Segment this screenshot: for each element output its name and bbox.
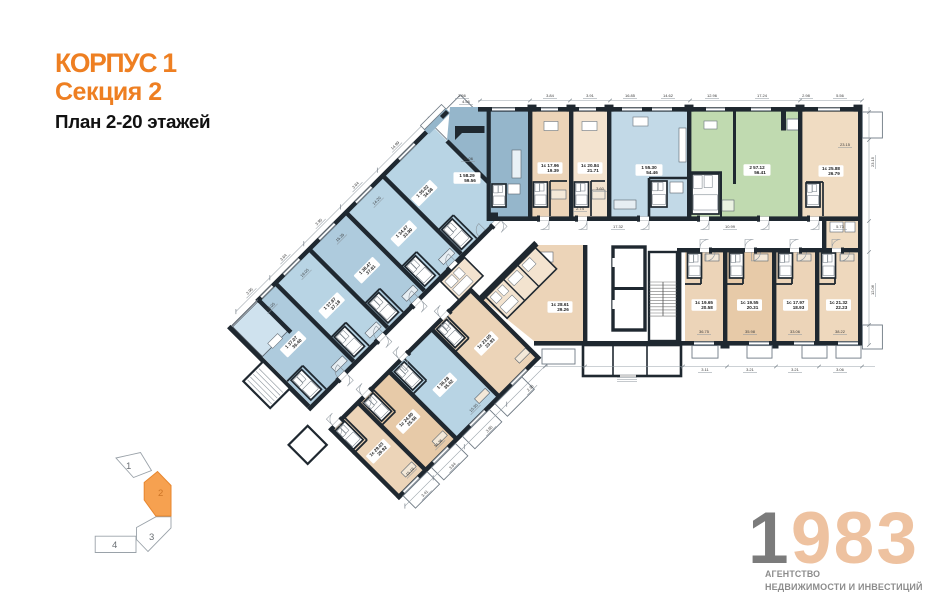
svg-text:3.91: 3.91 [586,93,595,98]
svg-text:2.98: 2.98 [802,93,811,98]
svg-text:12.06: 12.06 [870,284,875,295]
svg-text:26.79: 26.79 [828,171,840,176]
svg-text:21.71: 21.71 [587,168,599,173]
svg-text:4.56: 4.56 [462,99,471,104]
svg-text:КОРПУС 1: КОРПУС 1 [55,48,176,78]
svg-text:18.93: 18.93 [793,305,805,310]
svg-text:29.26: 29.26 [557,307,569,312]
svg-text:НЕДВИЖИМОСТИ И ИНВЕСТИЦИЙ: НЕДВИЖИМОСТИ И ИНВЕСТИЦИЙ [765,581,923,592]
svg-text:2.74: 2.74 [576,206,585,211]
svg-text:20.31: 20.31 [747,305,759,310]
svg-text:5.56: 5.56 [836,93,845,98]
svg-text:23.15: 23.15 [840,142,851,147]
svg-text:35.98: 35.98 [745,329,756,334]
svg-text:23.15: 23.15 [870,156,875,167]
svg-text:3.84: 3.84 [546,93,555,98]
svg-text:3.21: 3.21 [791,367,800,372]
svg-text:3.06: 3.06 [836,367,845,372]
svg-text:33.06: 33.06 [790,329,801,334]
svg-text:20.58: 20.58 [701,305,713,310]
svg-text:36.75: 36.75 [699,329,710,334]
svg-text:5.73: 5.73 [836,224,845,229]
svg-text:3.21: 3.21 [746,367,755,372]
svg-text:54.46: 54.46 [646,170,658,175]
svg-text:4: 4 [112,540,117,551]
svg-text:16.85: 16.85 [625,93,636,98]
svg-text:2: 2 [158,488,163,499]
svg-text:АГЕНТСТВО: АГЕНТСТВО [765,569,820,579]
svg-text:12.96: 12.96 [707,93,718,98]
svg-text:10.99: 10.99 [725,224,736,229]
svg-text:16.06: 16.06 [463,156,474,161]
svg-text:59.56: 59.56 [464,178,476,183]
svg-text:38.22: 38.22 [835,329,846,334]
svg-text:1983: 1983 [748,498,919,579]
svg-text:17.24: 17.24 [757,93,768,98]
svg-text:3: 3 [149,532,154,543]
svg-text:56.41: 56.41 [754,170,766,175]
svg-text:3.60: 3.60 [596,186,605,191]
svg-text:17.32: 17.32 [613,224,624,229]
svg-text:План 2-20 этажей: План 2-20 этажей [55,111,210,132]
svg-text:14.62: 14.62 [663,93,674,98]
svg-text:1: 1 [126,461,131,472]
svg-text:19.39: 19.39 [547,168,559,173]
svg-text:3.11: 3.11 [701,367,709,372]
svg-text:2.56: 2.56 [458,93,467,98]
svg-text:Секция 2: Секция 2 [55,78,162,106]
svg-text:22.23: 22.23 [836,305,848,310]
